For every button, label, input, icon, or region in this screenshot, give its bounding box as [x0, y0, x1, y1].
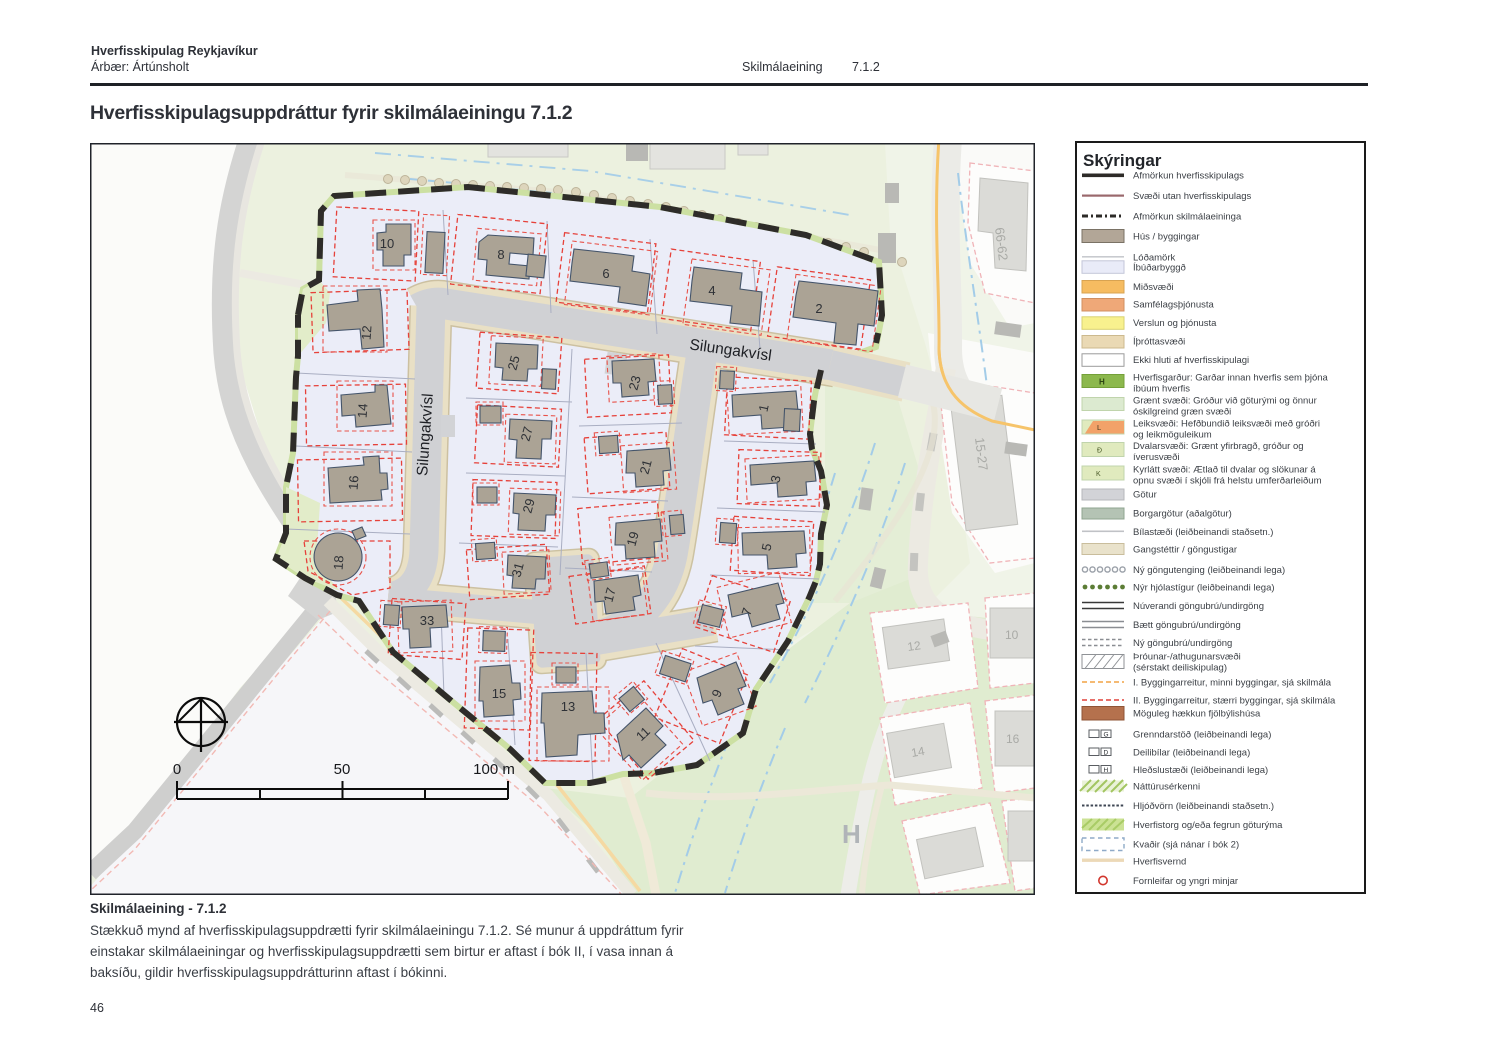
svg-text:Hleðslustæði (leiðbeinandi leg: Hleðslustæði (leiðbeinandi lega) — [1133, 765, 1268, 776]
svg-text:Ný göngubrú/undirgöng: Ný göngubrú/undirgöng — [1133, 638, 1232, 649]
svg-text:Íþróttasvæði: Íþróttasvæði — [1133, 337, 1185, 348]
svg-text:Borgargötur (aðalgötur): Borgargötur (aðalgötur) — [1133, 509, 1232, 520]
svg-text:10: 10 — [380, 236, 394, 251]
svg-text:14: 14 — [355, 403, 371, 418]
svg-text:Hverfisgarður: Garðar innan hv: Hverfisgarður: Garðar innan hverfis sem … — [1133, 373, 1329, 384]
svg-text:10: 10 — [1005, 628, 1019, 642]
svg-text:Hverfistorg og/eða fegrun götu: Hverfistorg og/eða fegrun göturýma — [1133, 820, 1283, 831]
svg-text:Hverfisvernd: Hverfisvernd — [1133, 857, 1186, 868]
svg-text:Núverandi göngubrú/undirgöng: Núverandi göngubrú/undirgöng — [1133, 601, 1264, 612]
svg-text:14: 14 — [910, 744, 926, 760]
svg-text:15: 15 — [492, 686, 506, 701]
svg-text:12: 12 — [906, 638, 921, 654]
svg-text:(sérstakt deiliskipulag): (sérstakt deiliskipulag) — [1133, 663, 1227, 674]
svg-text:6: 6 — [602, 266, 609, 281]
svg-text:II. Byggingarreitur, stærri by: II. Byggingarreitur, stærri byggingar, s… — [1133, 696, 1336, 707]
svg-text:óskilgreind græn svæði: óskilgreind græn svæði — [1133, 407, 1231, 418]
svg-text:Þróunar-/athugunarsvæði: Þróunar-/athugunarsvæði — [1133, 652, 1241, 663]
svg-text:Götur: Götur — [1133, 490, 1157, 501]
svg-text:Grenndarstöð (leiðbeinandi leg: Grenndarstöð (leiðbeinandi lega) — [1133, 730, 1271, 741]
svg-text:0: 0 — [173, 761, 181, 778]
svg-text:og leikmöguleikum: og leikmöguleikum — [1133, 430, 1212, 441]
svg-text:Hljóðvörn (leiðbeinandi staðse: Hljóðvörn (leiðbeinandi staðsetn.) — [1133, 801, 1274, 812]
svg-text:K: K — [1096, 471, 1101, 478]
svg-text:Kyrlátt svæði: Ætlað til dvala: Kyrlátt svæði: Ætlað til dvalar og slöku… — [1133, 465, 1316, 476]
svg-text:Leiksvæði: Hefðbundið leiksvæð: Leiksvæði: Hefðbundið leiksvæði með gróð… — [1133, 419, 1320, 430]
svg-text:Hús / byggingar: Hús / byggingar — [1133, 232, 1200, 243]
svg-text:Bætt göngubrú/undirgöng: Bætt göngubrú/undirgöng — [1133, 620, 1241, 631]
svg-text:13: 13 — [561, 699, 575, 714]
svg-text:Grænt svæði: Gróður við göturý: Grænt svæði: Gróður við göturými og önnu… — [1133, 396, 1317, 407]
svg-text:33: 33 — [420, 613, 434, 628]
svg-text:Verslun og þjónusta: Verslun og þjónusta — [1133, 318, 1217, 329]
svg-text:Ð: Ð — [1097, 448, 1102, 455]
svg-text:Svæði utan hverfisskipulags: Svæði utan hverfisskipulags — [1133, 191, 1252, 202]
svg-text:Afmörkun hverfisskipulags: Afmörkun hverfisskipulags — [1133, 171, 1244, 182]
svg-text:Miðsvæði: Miðsvæði — [1133, 282, 1174, 293]
svg-text:Gangstéttir / göngustigar: Gangstéttir / göngustigar — [1133, 545, 1237, 556]
svg-text:H: H — [1099, 378, 1105, 387]
svg-text:100 m: 100 m — [473, 761, 515, 778]
svg-text:D: D — [1104, 750, 1109, 757]
svg-text:Fornleifar og yngri minjar: Fornleifar og yngri minjar — [1133, 876, 1238, 887]
svg-text:Afmörkun skilmálaeininga: Afmörkun skilmálaeininga — [1133, 212, 1242, 223]
svg-text:Möguleg hækkun fjölbýlishúsa: Möguleg hækkun fjölbýlishúsa — [1133, 709, 1261, 720]
svg-text:Dvalarsvæði: Grænt yfirbragð,: Dvalarsvæði: Grænt yfirbragð, gróður og — [1133, 441, 1304, 452]
svg-text:4: 4 — [708, 283, 715, 298]
svg-text:16: 16 — [1006, 732, 1020, 746]
svg-text:Kvaðir (sjá nánar í bók 2): Kvaðir (sjá nánar í bók 2) — [1133, 840, 1239, 851]
svg-text:18: 18 — [331, 555, 347, 570]
svg-text:Skýringar: Skýringar — [1083, 151, 1162, 170]
svg-text:H: H — [1104, 767, 1109, 774]
svg-text:Íbúðarbyggð: Íbúðarbyggð — [1133, 263, 1186, 274]
svg-text:Ekki hluti af hverfisskipulagi: Ekki hluti af hverfisskipulagi — [1133, 355, 1249, 366]
svg-text:H: H — [842, 819, 861, 849]
svg-text:16: 16 — [346, 475, 362, 490]
svg-text:2: 2 — [815, 301, 822, 316]
svg-text:50: 50 — [334, 761, 351, 778]
svg-text:Bílastæði (leiðbeinandi staðse: Bílastæði (leiðbeinandi staðsetn.) — [1133, 527, 1273, 538]
svg-text:12: 12 — [359, 325, 375, 340]
svg-text:L: L — [1097, 423, 1101, 432]
svg-text:Nýr hjólastígur (leiðbeinandi: Nýr hjólastígur (leiðbeinandi lega) — [1133, 583, 1275, 594]
svg-text:Náttúrusérkenni: Náttúrusérkenni — [1133, 782, 1200, 793]
svg-text:8: 8 — [497, 247, 504, 262]
svg-text:opnu svæði í skjóli frá helstu: opnu svæði í skjóli frá helstu umferðarl… — [1133, 476, 1322, 487]
svg-text:I. Byggingarreitur, minni bygg: I. Byggingarreitur, minni byggingar, sjá… — [1133, 678, 1332, 689]
svg-text:G: G — [1104, 732, 1109, 739]
svg-text:Ný göngutenging (leiðbeinandi: Ný göngutenging (leiðbeinandi lega) — [1133, 565, 1285, 576]
svg-text:íverusvæði: íverusvæði — [1133, 452, 1179, 463]
svg-text:íbúum hverfis: íbúum hverfis — [1133, 384, 1190, 395]
svg-text:Deilibílar (leiðbeinandi lega): Deilibílar (leiðbeinandi lega) — [1133, 748, 1250, 759]
svg-text:Samfélagsþjónusta: Samfélagsþjónusta — [1133, 300, 1215, 311]
